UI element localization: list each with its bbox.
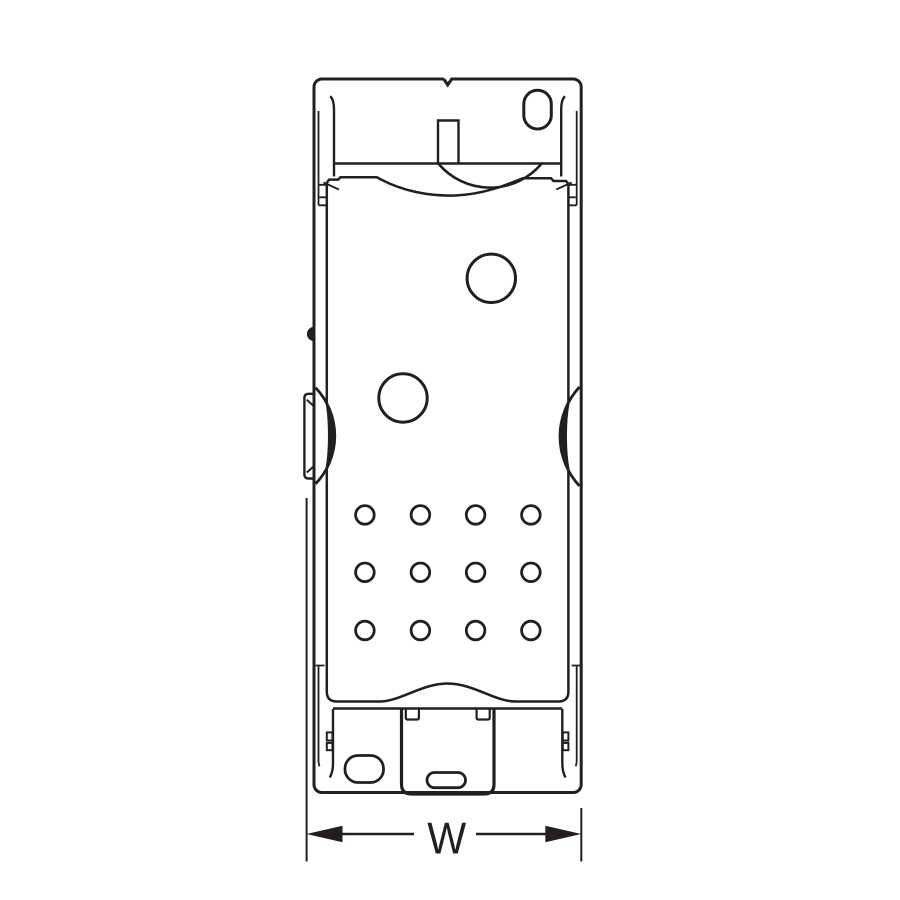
svg-text:W: W xyxy=(427,815,466,864)
